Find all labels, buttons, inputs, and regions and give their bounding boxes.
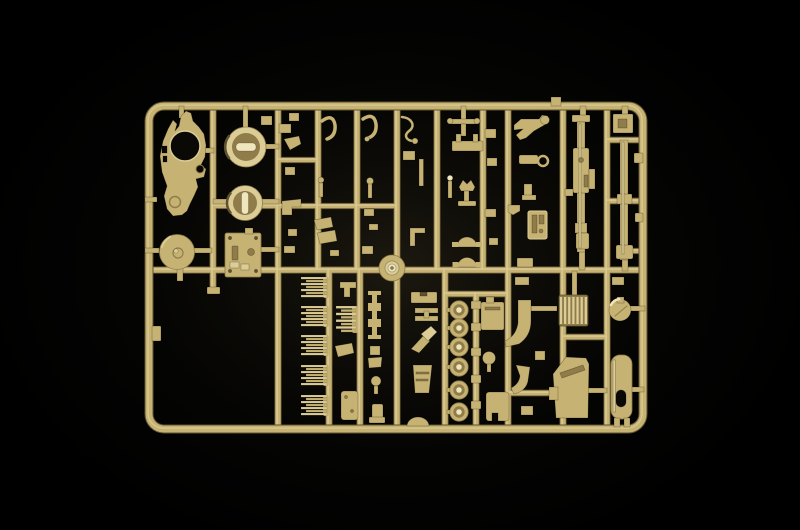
spring-part bbox=[341, 323, 356, 325]
spring-part bbox=[301, 401, 327, 403]
block-hole bbox=[539, 229, 543, 233]
small-bracket bbox=[535, 351, 545, 360]
drum-wheel-small bbox=[242, 192, 249, 214]
road-wheel bbox=[456, 307, 462, 313]
pin-shaft bbox=[368, 184, 372, 198]
small-bracket bbox=[612, 277, 624, 285]
plate-bolt bbox=[228, 236, 231, 239]
road-wheel bbox=[456, 409, 462, 415]
frame-tab bbox=[551, 97, 561, 106]
l-bracket-foot bbox=[522, 195, 536, 200]
axle-support bbox=[461, 124, 466, 136]
spring-part bbox=[336, 306, 356, 308]
knob-stem bbox=[487, 364, 491, 372]
road-wheel bbox=[456, 387, 462, 393]
rod-part bbox=[419, 159, 424, 186]
small-bracket bbox=[330, 250, 339, 256]
spring-part bbox=[306, 338, 327, 340]
trail-arm-highlight bbox=[622, 142, 624, 254]
sprue-photo bbox=[0, 0, 800, 530]
spring-part bbox=[336, 320, 356, 322]
plate-bolt bbox=[228, 269, 231, 272]
plate-hole bbox=[248, 249, 255, 256]
spring-part bbox=[301, 383, 327, 385]
small-bracket bbox=[289, 113, 299, 121]
axle-part bbox=[450, 119, 477, 124]
tab-part bbox=[471, 401, 481, 409]
clamp-part bbox=[476, 242, 482, 247]
mount-foot bbox=[614, 418, 620, 427]
spring-part bbox=[306, 286, 327, 288]
small-bracket bbox=[362, 246, 373, 254]
trail-arm-foot bbox=[576, 233, 589, 249]
axle-end bbox=[474, 118, 480, 124]
crown-stem bbox=[464, 191, 469, 202]
spring-part bbox=[301, 277, 327, 279]
small-bracket bbox=[370, 346, 380, 355]
mount-plate-highlight bbox=[613, 360, 616, 412]
small-bracket bbox=[369, 224, 378, 230]
bolt-part bbox=[368, 303, 381, 307]
bolt-part bbox=[372, 310, 377, 320]
road-wheel bbox=[456, 344, 462, 350]
spring-part bbox=[306, 404, 327, 406]
grille-part bbox=[564, 297, 566, 324]
spring-part bbox=[301, 335, 327, 337]
small-bracket bbox=[487, 158, 497, 166]
plate-detail bbox=[241, 264, 249, 270]
trail-arm-collar bbox=[617, 194, 632, 204]
grille-part bbox=[560, 297, 562, 324]
gate bbox=[531, 306, 557, 311]
panel-line bbox=[416, 372, 429, 374]
stub bbox=[177, 268, 183, 281]
pin-head bbox=[318, 177, 324, 183]
gate bbox=[572, 271, 577, 296]
trail-arm-part bbox=[572, 115, 590, 122]
cradle-slot bbox=[162, 146, 167, 153]
block-slot bbox=[539, 215, 544, 224]
spring-part bbox=[336, 313, 356, 315]
hook-ball bbox=[365, 137, 370, 142]
plate-bolt bbox=[254, 269, 257, 272]
spring-part bbox=[306, 380, 327, 382]
trail-arm-lug bbox=[589, 169, 595, 189]
plate-detail bbox=[230, 262, 239, 268]
gate bbox=[243, 106, 248, 129]
knob-stem bbox=[374, 386, 378, 394]
spring-part bbox=[301, 324, 327, 326]
cradle-slot bbox=[163, 156, 167, 162]
spring-part bbox=[301, 318, 327, 320]
tab-part bbox=[471, 348, 481, 356]
block-part bbox=[341, 391, 358, 420]
knob-part bbox=[483, 352, 496, 365]
spring-part bbox=[336, 326, 356, 328]
plate-tab bbox=[245, 228, 253, 234]
gate bbox=[261, 247, 279, 252]
gate bbox=[631, 387, 644, 392]
spring-part bbox=[301, 341, 327, 343]
small-bracket bbox=[261, 116, 272, 125]
grille-part bbox=[581, 297, 583, 324]
hub-pin bbox=[391, 267, 394, 270]
spring-part bbox=[301, 306, 327, 308]
clamp-part bbox=[476, 262, 482, 267]
cradle-notch bbox=[196, 165, 204, 173]
spring-part bbox=[341, 309, 356, 311]
small-bracket bbox=[403, 151, 415, 160]
road-wheel bbox=[456, 364, 462, 370]
spring-part bbox=[306, 309, 327, 311]
bolt-part bbox=[372, 326, 377, 336]
drum-wheel-large bbox=[236, 143, 256, 151]
spring-part bbox=[301, 371, 327, 373]
gate bbox=[587, 388, 607, 393]
spring-part bbox=[306, 374, 327, 376]
runner-foot bbox=[207, 287, 220, 294]
spring-part bbox=[306, 398, 327, 400]
small-bracket bbox=[565, 189, 573, 196]
pin-head bbox=[367, 178, 374, 185]
crown-base bbox=[458, 201, 476, 206]
road-wheel bbox=[456, 325, 462, 331]
panel-foot bbox=[549, 387, 558, 400]
frame-tab bbox=[152, 326, 161, 341]
small-bracket bbox=[521, 406, 533, 415]
small-wedge bbox=[368, 357, 382, 368]
pedestal-post bbox=[473, 134, 478, 142]
small-bracket bbox=[515, 277, 529, 285]
spring-part bbox=[301, 289, 327, 291]
block-bolt bbox=[345, 396, 348, 399]
block-slot bbox=[532, 215, 537, 233]
mg-drum bbox=[541, 116, 550, 125]
grille-part bbox=[576, 297, 578, 324]
plate-slot bbox=[232, 246, 238, 260]
spring-part bbox=[341, 330, 356, 332]
photo-canvas bbox=[0, 0, 800, 530]
clamp-part bbox=[452, 242, 458, 247]
small-bracket bbox=[288, 229, 297, 236]
spring-part bbox=[306, 280, 327, 282]
spring-part bbox=[306, 292, 327, 294]
knob-part bbox=[371, 376, 381, 386]
gate bbox=[193, 248, 212, 253]
bolt-part bbox=[368, 319, 381, 323]
trail-arm-foot bbox=[616, 245, 633, 259]
pin-head bbox=[447, 175, 453, 181]
bar-link bbox=[424, 311, 429, 318]
frame-tab bbox=[635, 213, 643, 222]
tab-part bbox=[471, 375, 481, 383]
block-foot bbox=[369, 417, 385, 423]
cradle-hole bbox=[170, 131, 200, 161]
spring-part bbox=[306, 410, 327, 412]
gate bbox=[145, 248, 159, 253]
spring-part bbox=[341, 316, 356, 318]
spring-part bbox=[306, 344, 327, 346]
frame-tab bbox=[634, 153, 643, 163]
pin-shaft bbox=[448, 181, 452, 198]
spring-part bbox=[306, 368, 327, 370]
plate-bolt bbox=[254, 236, 257, 239]
trail-arm-hole bbox=[579, 158, 584, 163]
bracket-notch bbox=[420, 292, 427, 296]
rod-block bbox=[519, 155, 538, 164]
gate bbox=[145, 197, 157, 202]
spring-part bbox=[301, 353, 327, 355]
trail-arm-slot bbox=[584, 175, 588, 187]
spring-part bbox=[301, 407, 327, 409]
panel-line bbox=[416, 379, 428, 381]
spring-part bbox=[306, 350, 327, 352]
clamp-part bbox=[453, 262, 459, 267]
small-bracket bbox=[485, 129, 496, 138]
small-bracket bbox=[285, 167, 295, 175]
spring-part bbox=[301, 365, 327, 367]
spring-part bbox=[301, 395, 327, 397]
pedestal-post bbox=[456, 134, 461, 142]
tab-part bbox=[471, 323, 481, 331]
disc-hub-dot bbox=[174, 249, 178, 253]
plate-tab bbox=[486, 297, 494, 303]
spring-part bbox=[301, 283, 327, 285]
small-bracket bbox=[284, 246, 295, 253]
bolt-part bbox=[368, 335, 381, 339]
pedestal-part bbox=[452, 141, 483, 151]
small-bracket bbox=[517, 258, 533, 267]
small-bracket bbox=[279, 124, 291, 133]
spring-part bbox=[301, 347, 327, 349]
tab-part bbox=[471, 301, 481, 309]
grille-part bbox=[568, 297, 570, 324]
wire-ball bbox=[412, 138, 418, 144]
spring-part bbox=[301, 295, 327, 297]
small-bracket bbox=[489, 238, 498, 245]
trail-arm-highlight bbox=[579, 124, 581, 248]
gate bbox=[461, 106, 466, 120]
grille-part bbox=[572, 297, 574, 324]
block-bolt bbox=[351, 410, 354, 413]
pin-shaft bbox=[319, 183, 323, 197]
small-bracket bbox=[485, 209, 496, 217]
mount-foot bbox=[624, 418, 630, 427]
plate-notch bbox=[492, 413, 498, 421]
bolt-part bbox=[372, 294, 377, 304]
spring-part bbox=[306, 315, 327, 317]
spring-part bbox=[301, 312, 327, 314]
spring-part bbox=[306, 321, 327, 323]
gate bbox=[630, 306, 645, 311]
gate bbox=[261, 199, 279, 204]
trail-arm-slot bbox=[618, 119, 627, 128]
spring-part bbox=[301, 413, 327, 415]
grille-part bbox=[585, 297, 587, 324]
axle-end bbox=[447, 118, 453, 124]
plate-part bbox=[481, 302, 504, 330]
mount-plate-hole bbox=[616, 390, 626, 407]
small-bracket bbox=[364, 209, 374, 216]
plate-line bbox=[485, 307, 500, 310]
spring-part bbox=[301, 377, 327, 379]
